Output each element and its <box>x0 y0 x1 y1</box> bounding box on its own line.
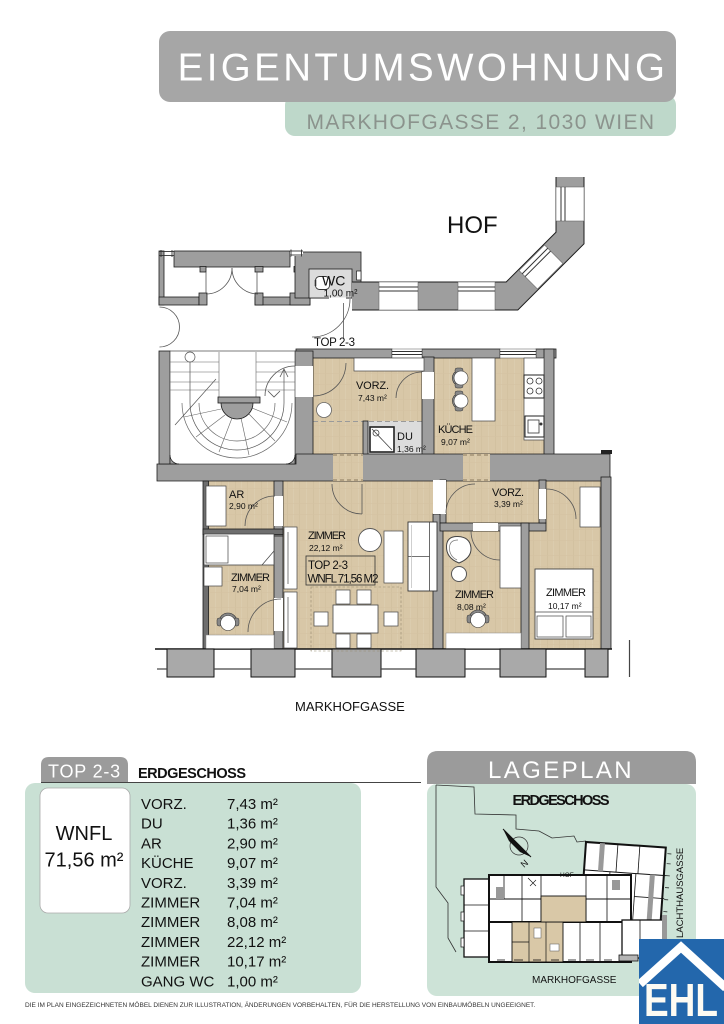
svg-text:8,08 m²: 8,08 m² <box>227 914 278 931</box>
svg-text:22,12 m²: 22,12 m² <box>227 934 286 951</box>
svg-text:TOP 2-3: TOP 2-3 <box>308 560 348 572</box>
svg-text:ZIMMER: ZIMMER <box>455 589 494 601</box>
svg-text:3,39 m²: 3,39 m² <box>227 875 278 892</box>
svg-text:1,36 m²: 1,36 m² <box>227 816 278 833</box>
svg-text:HOF: HOF <box>447 212 498 239</box>
svg-text:MARKHOFGASSE: MARKHOFGASSE <box>532 975 617 986</box>
svg-text:LACHTHAUSGASSE: LACHTHAUSGASSE <box>675 848 686 938</box>
svg-text:1,36 m²: 1,36 m² <box>397 444 426 454</box>
svg-text:ZIMMER: ZIMMER <box>141 914 200 931</box>
svg-text:10,17 m²: 10,17 m² <box>548 601 582 611</box>
svg-text:DU: DU <box>397 431 413 443</box>
svg-text:VORZ.: VORZ. <box>141 875 187 892</box>
svg-text:3,39 m²: 3,39 m² <box>494 499 523 509</box>
svg-text:7,04 m²: 7,04 m² <box>232 584 261 594</box>
svg-text:ZIMMER: ZIMMER <box>141 895 200 912</box>
svg-text:MARKHOFGASSE 2, 1030 WIEN: MARKHOFGASSE 2, 1030 WIEN <box>307 111 656 134</box>
svg-text:EIGENTUMSWOHNUNG: EIGENTUMSWOHNUNG <box>178 47 669 90</box>
svg-text:DIE IM PLAN EINGEZEICHNETEN MÖ: DIE IM PLAN EINGEZEICHNETEN MÖBEL DIENEN… <box>25 1001 535 1009</box>
svg-text:22,12 m²: 22,12 m² <box>309 543 343 553</box>
svg-text:ZIMMER: ZIMMER <box>141 934 200 951</box>
svg-text:ZIMMER: ZIMMER <box>231 572 270 584</box>
svg-text:EHL: EHL <box>644 974 718 1024</box>
svg-text:VORZ.: VORZ. <box>492 487 524 499</box>
svg-text:MARKHOFGASSE: MARKHOFGASSE <box>295 699 405 714</box>
svg-text:WC: WC <box>322 273 345 289</box>
svg-text:KÜCHE: KÜCHE <box>438 424 473 436</box>
svg-text:ZIMMER: ZIMMER <box>141 954 200 971</box>
svg-text:1,00 m²: 1,00 m² <box>324 289 359 300</box>
svg-text:ZIMMER: ZIMMER <box>546 587 586 599</box>
svg-text:LAGEPLAN: LAGEPLAN <box>488 757 634 784</box>
svg-text:TOP 2-3: TOP 2-3 <box>314 337 355 349</box>
svg-text:10,17 m²: 10,17 m² <box>227 954 286 971</box>
svg-text:AR: AR <box>229 489 244 501</box>
svg-text:8,08 m²: 8,08 m² <box>457 602 486 612</box>
svg-text:9,07 m²: 9,07 m² <box>441 437 470 447</box>
svg-text:ERDGESCHOSS: ERDGESCHOSS <box>513 793 610 809</box>
svg-text:WNFL: WNFL <box>56 823 113 845</box>
svg-text:1,00 m²: 1,00 m² <box>227 973 278 990</box>
svg-text:TOP 2-3: TOP 2-3 <box>48 762 121 782</box>
svg-text:ZIMMER: ZIMMER <box>308 530 346 542</box>
svg-text:VORZ.: VORZ. <box>356 380 389 392</box>
svg-text:HOF: HOF <box>560 872 574 879</box>
svg-text:7,43 m²: 7,43 m² <box>358 393 387 403</box>
svg-text:2,90 m²: 2,90 m² <box>229 501 258 511</box>
svg-text:KÜCHE: KÜCHE <box>141 854 194 872</box>
svg-text:2,90 m²: 2,90 m² <box>227 835 278 852</box>
svg-text:71,56 m²: 71,56 m² <box>45 850 124 872</box>
svg-text:ERDGESCHOSS: ERDGESCHOSS <box>138 766 246 782</box>
svg-text:AR: AR <box>141 835 162 852</box>
svg-text:GANG WC: GANG WC <box>141 973 214 990</box>
svg-text:VORZ.: VORZ. <box>141 796 187 813</box>
svg-text:DU: DU <box>141 816 163 833</box>
svg-text:WNFL 71,56 M2: WNFL 71,56 M2 <box>308 574 379 586</box>
svg-text:9,07 m²: 9,07 m² <box>227 855 278 872</box>
svg-text:7,43 m²: 7,43 m² <box>227 796 278 813</box>
svg-text:7,04 m²: 7,04 m² <box>227 895 278 912</box>
